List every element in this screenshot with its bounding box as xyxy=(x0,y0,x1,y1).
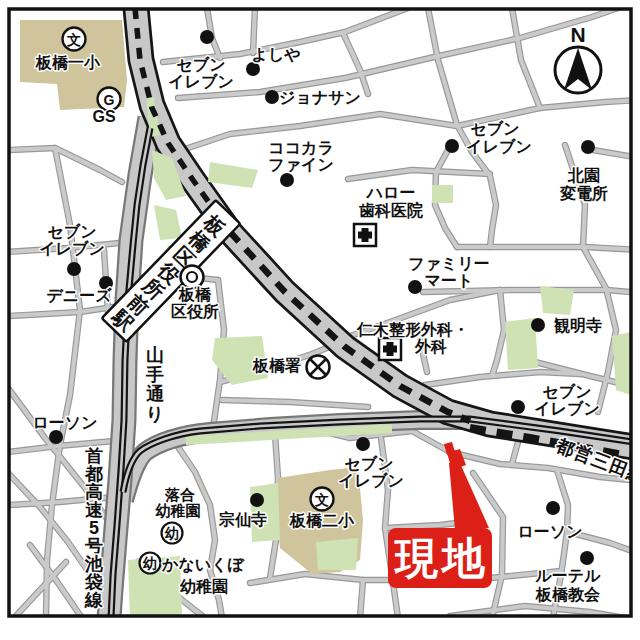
poi-dot-seven-eleven-north xyxy=(200,30,214,44)
label-jonathan: ジョナサン xyxy=(279,89,361,106)
label-seven-eleven-north: イレブン xyxy=(168,73,234,90)
label-kitazono-substation: 変電所 xyxy=(559,184,608,202)
poi-dot-sosenji xyxy=(250,493,264,507)
label-seven-eleven-west: イレブン xyxy=(39,240,105,257)
label-ochiai-kindergarten: 落合 xyxy=(164,486,196,503)
label-ward-office: 区役所 xyxy=(171,303,219,320)
label-seven-eleven-east: イレブン xyxy=(534,400,600,417)
svg-text:G: G xyxy=(104,92,115,108)
svg-text:文: 文 xyxy=(314,492,329,508)
label-seven-eleven-north: セブン xyxy=(176,56,225,73)
school-icon: 文 xyxy=(311,488,334,511)
poi-dot-kanmyoji xyxy=(531,318,545,332)
label-familymart: ファミリー xyxy=(408,255,490,272)
poi-dot-lawson-west xyxy=(49,430,63,444)
label-seven-eleven-ne: イレブン xyxy=(466,138,532,155)
svg-text:幼: 幼 xyxy=(164,525,179,541)
label-kanaikubo-kindergarten: 幼稚園 xyxy=(180,578,228,595)
label-lutheran-church: ルーテル xyxy=(534,567,601,584)
label-seven-eleven-south: セブン xyxy=(344,455,393,472)
school-icon: 文 xyxy=(63,28,86,51)
compass: N xyxy=(555,23,601,93)
label-seven-eleven-ne: セブン xyxy=(470,120,519,137)
label-sosenji: 宗仙寺 xyxy=(218,510,267,528)
label-cocokara-fine: ココカラ xyxy=(268,139,334,156)
label-police-station: 板橋署 xyxy=(252,357,301,374)
label-gs: GS xyxy=(92,108,115,125)
label-shuto-expressway: 首都高速5号池袋線 xyxy=(84,446,103,610)
site-callout-label: 現地 xyxy=(393,534,489,582)
label-yamate-dori: 山手通り xyxy=(145,345,165,424)
label-yoshiya: よしや xyxy=(251,46,300,63)
poi-dot-seven-eleven-south xyxy=(356,437,370,451)
poi-dot-familymart xyxy=(408,280,422,294)
label-niki-clinic: 仁木整形外科・ xyxy=(356,321,469,338)
label-ward-office: 板橋 xyxy=(178,286,212,303)
label-seven-eleven-east: セブン xyxy=(542,383,591,400)
label-seven-eleven-south: イレブン xyxy=(338,472,404,489)
site-marker: 現地 xyxy=(388,442,492,588)
label-kanmyoji: 観明寺 xyxy=(553,317,602,334)
label-kanaikubo-kindergarten: かないくぼ xyxy=(161,556,246,574)
label-hello-dental: 歯科医院 xyxy=(359,201,423,219)
label-itabashi-2-school: 板橋二小 xyxy=(289,512,355,529)
kindergarten-icon: 幼 xyxy=(140,553,161,574)
label-seven-eleven-west: セブン xyxy=(47,223,96,240)
label-niki-clinic: 外科 xyxy=(414,338,447,355)
svg-text:文: 文 xyxy=(66,32,81,48)
label-lawson-west: ローソン xyxy=(32,414,97,431)
poi-dot-kitazono-substation xyxy=(581,140,595,154)
label-familymart: マート xyxy=(425,272,474,289)
poi-dot-seven-eleven-west xyxy=(67,262,81,276)
location-map: 板橋区役所前駅 文 文 G xyxy=(0,0,640,640)
hospital-icon xyxy=(354,224,376,246)
label-itabashi-1-school: 板橋一小 xyxy=(35,54,101,71)
poi-dot-jonathan xyxy=(265,90,279,104)
poi-dot-seven-eleven-east xyxy=(511,400,525,414)
compass-n-label: N xyxy=(570,23,585,46)
label-kitazono-substation: 北園 xyxy=(567,167,600,184)
poi-dot-lutheran-church xyxy=(580,551,594,565)
poi-dot-lawson-se xyxy=(546,501,560,515)
label-lutheran-church: 板橋教会 xyxy=(535,586,601,603)
label-ochiai-kindergarten: 幼稚園 xyxy=(156,502,201,519)
label-cocokara-fine: ファイン xyxy=(268,156,334,173)
svg-text:幼: 幼 xyxy=(142,555,157,571)
poi-dot-seven-eleven-ne xyxy=(445,139,459,153)
label-hello-dental: ハロー xyxy=(366,184,416,201)
kindergarten-icon: 幼 xyxy=(162,523,183,544)
map-page: 板橋区役所前駅 文 文 G xyxy=(0,0,640,640)
poi-dot-yoshiya xyxy=(246,62,260,76)
label-lawson-se: ローソン xyxy=(517,523,582,540)
police-station-icon xyxy=(307,356,330,379)
label-dennys: デニーズ xyxy=(46,287,112,304)
poi-dot-cocokara-fine xyxy=(280,173,294,187)
hospital-icon xyxy=(379,338,401,360)
site-pointer xyxy=(449,461,489,530)
